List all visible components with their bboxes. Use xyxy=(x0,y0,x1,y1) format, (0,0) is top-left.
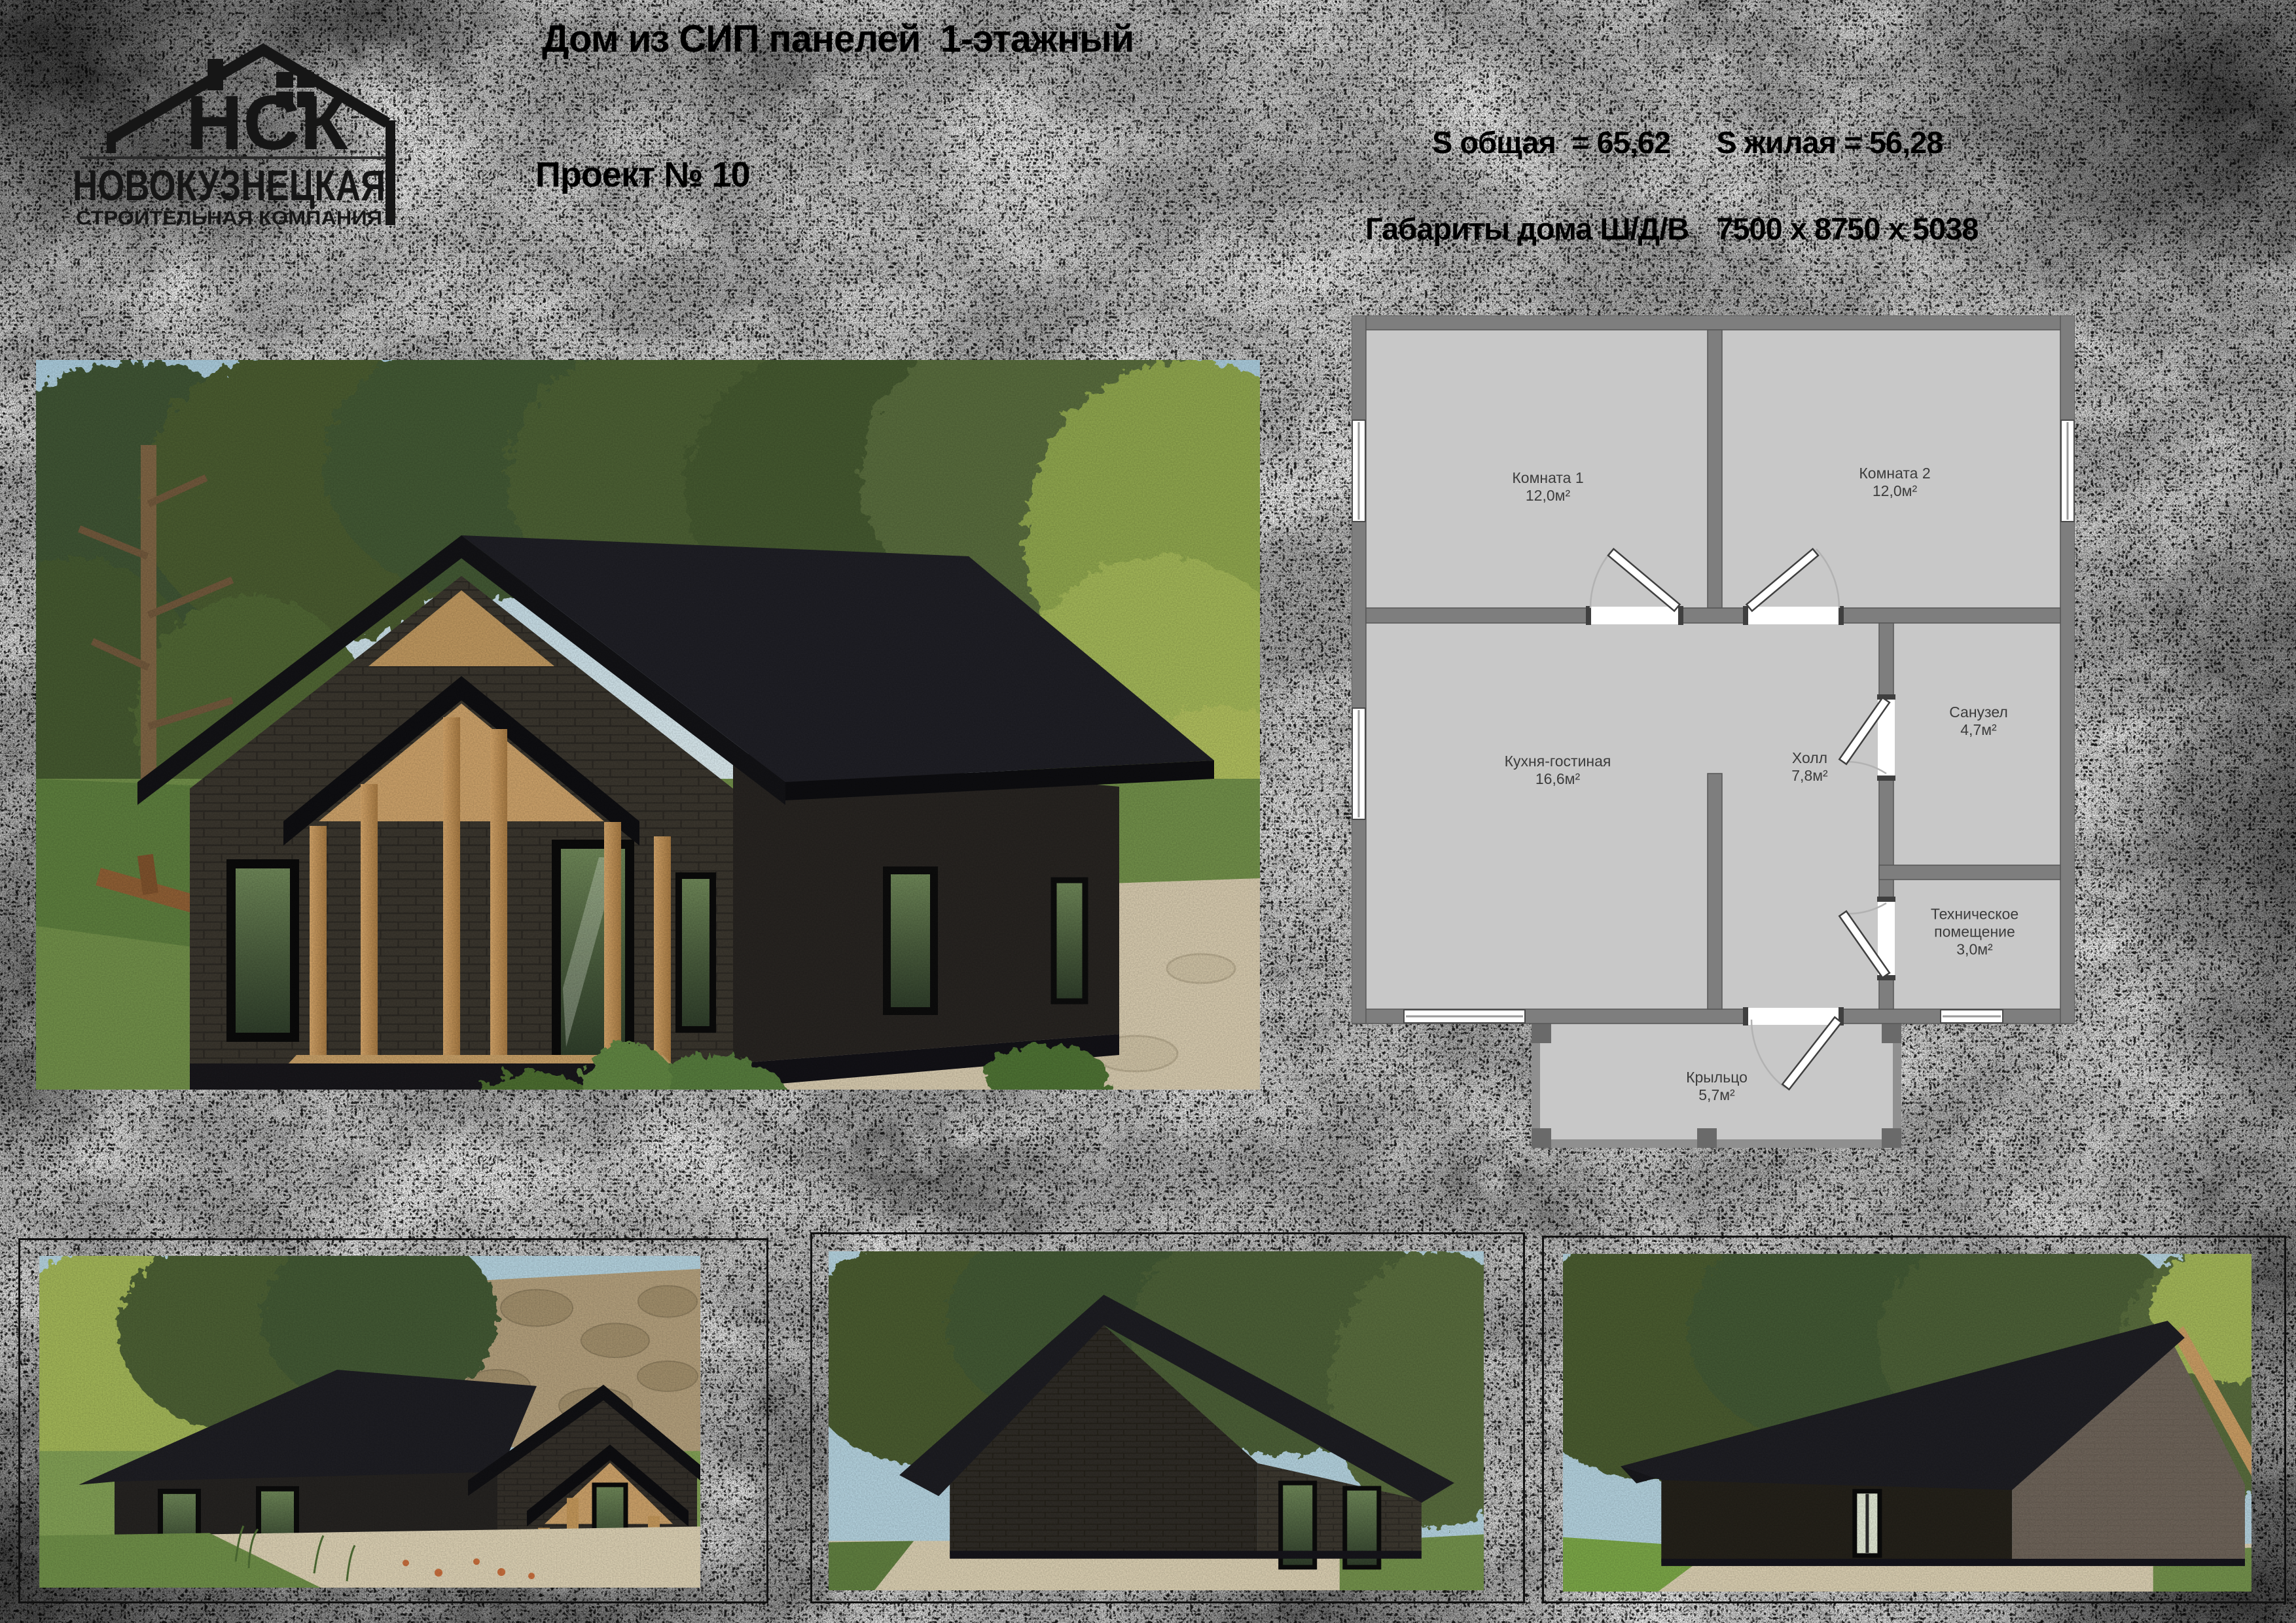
thumbnail-render-rear-left xyxy=(829,1251,1484,1590)
main-render-photo xyxy=(36,360,1260,1090)
total-area: S общая = 65,62 xyxy=(1432,125,1670,160)
logo-tagline: СТРОИТЕЛЬНАЯ КОМПАНИЯ xyxy=(76,207,382,229)
dimensions-value: 7500 x 8750 x 5038 xyxy=(1716,211,1978,246)
room-label-komnata-1: Комната 1 12,0м² xyxy=(1473,469,1623,505)
room-label-hall: Холл 7,8м² xyxy=(1734,749,1885,785)
floor-plan: Комната 1 12,0м² Комната 2 12,0м² Кухня-… xyxy=(1352,315,2075,1160)
project-number: Проект № 10 xyxy=(535,154,750,195)
thumbnail-render-front-left xyxy=(39,1256,700,1588)
dimensions-label: Габариты дома Ш/Д/В xyxy=(1365,211,1689,246)
room-label-porch: Крыльцо 5,7м² xyxy=(1641,1069,1792,1104)
areas-line: S общая = 65,62 S жилая = 56,28 xyxy=(1432,124,1943,160)
logo-abbr: НСК xyxy=(186,80,349,166)
thumbnail-render-rear-right xyxy=(1563,1254,2251,1592)
room-label-tech-room: Техническое помещение 3,0м² xyxy=(1912,905,2037,958)
living-area: S жилая = 56,28 xyxy=(1716,125,1943,160)
room-label-komnata-2: Комната 2 12,0м² xyxy=(1820,465,1970,500)
room-label-kitchen: Кухня-гостиная 16,6м² xyxy=(1482,753,1633,788)
dimensions-line: Габариты дома Ш/Д/В 7500 x 8750 x 5038 xyxy=(1365,211,1978,247)
room-label-bathroom: Санузел 4,7м² xyxy=(1903,704,2054,739)
page-title: Дом из СИП панелей 1-этажный xyxy=(542,17,1134,61)
logo-name: НОВОКУЗНЕЦКАЯ xyxy=(73,161,386,209)
company-logo: НСК НОВОКУЗНЕЦКАЯ СТРОИТЕЛЬНАЯ КОМПАНИЯ xyxy=(60,25,419,246)
